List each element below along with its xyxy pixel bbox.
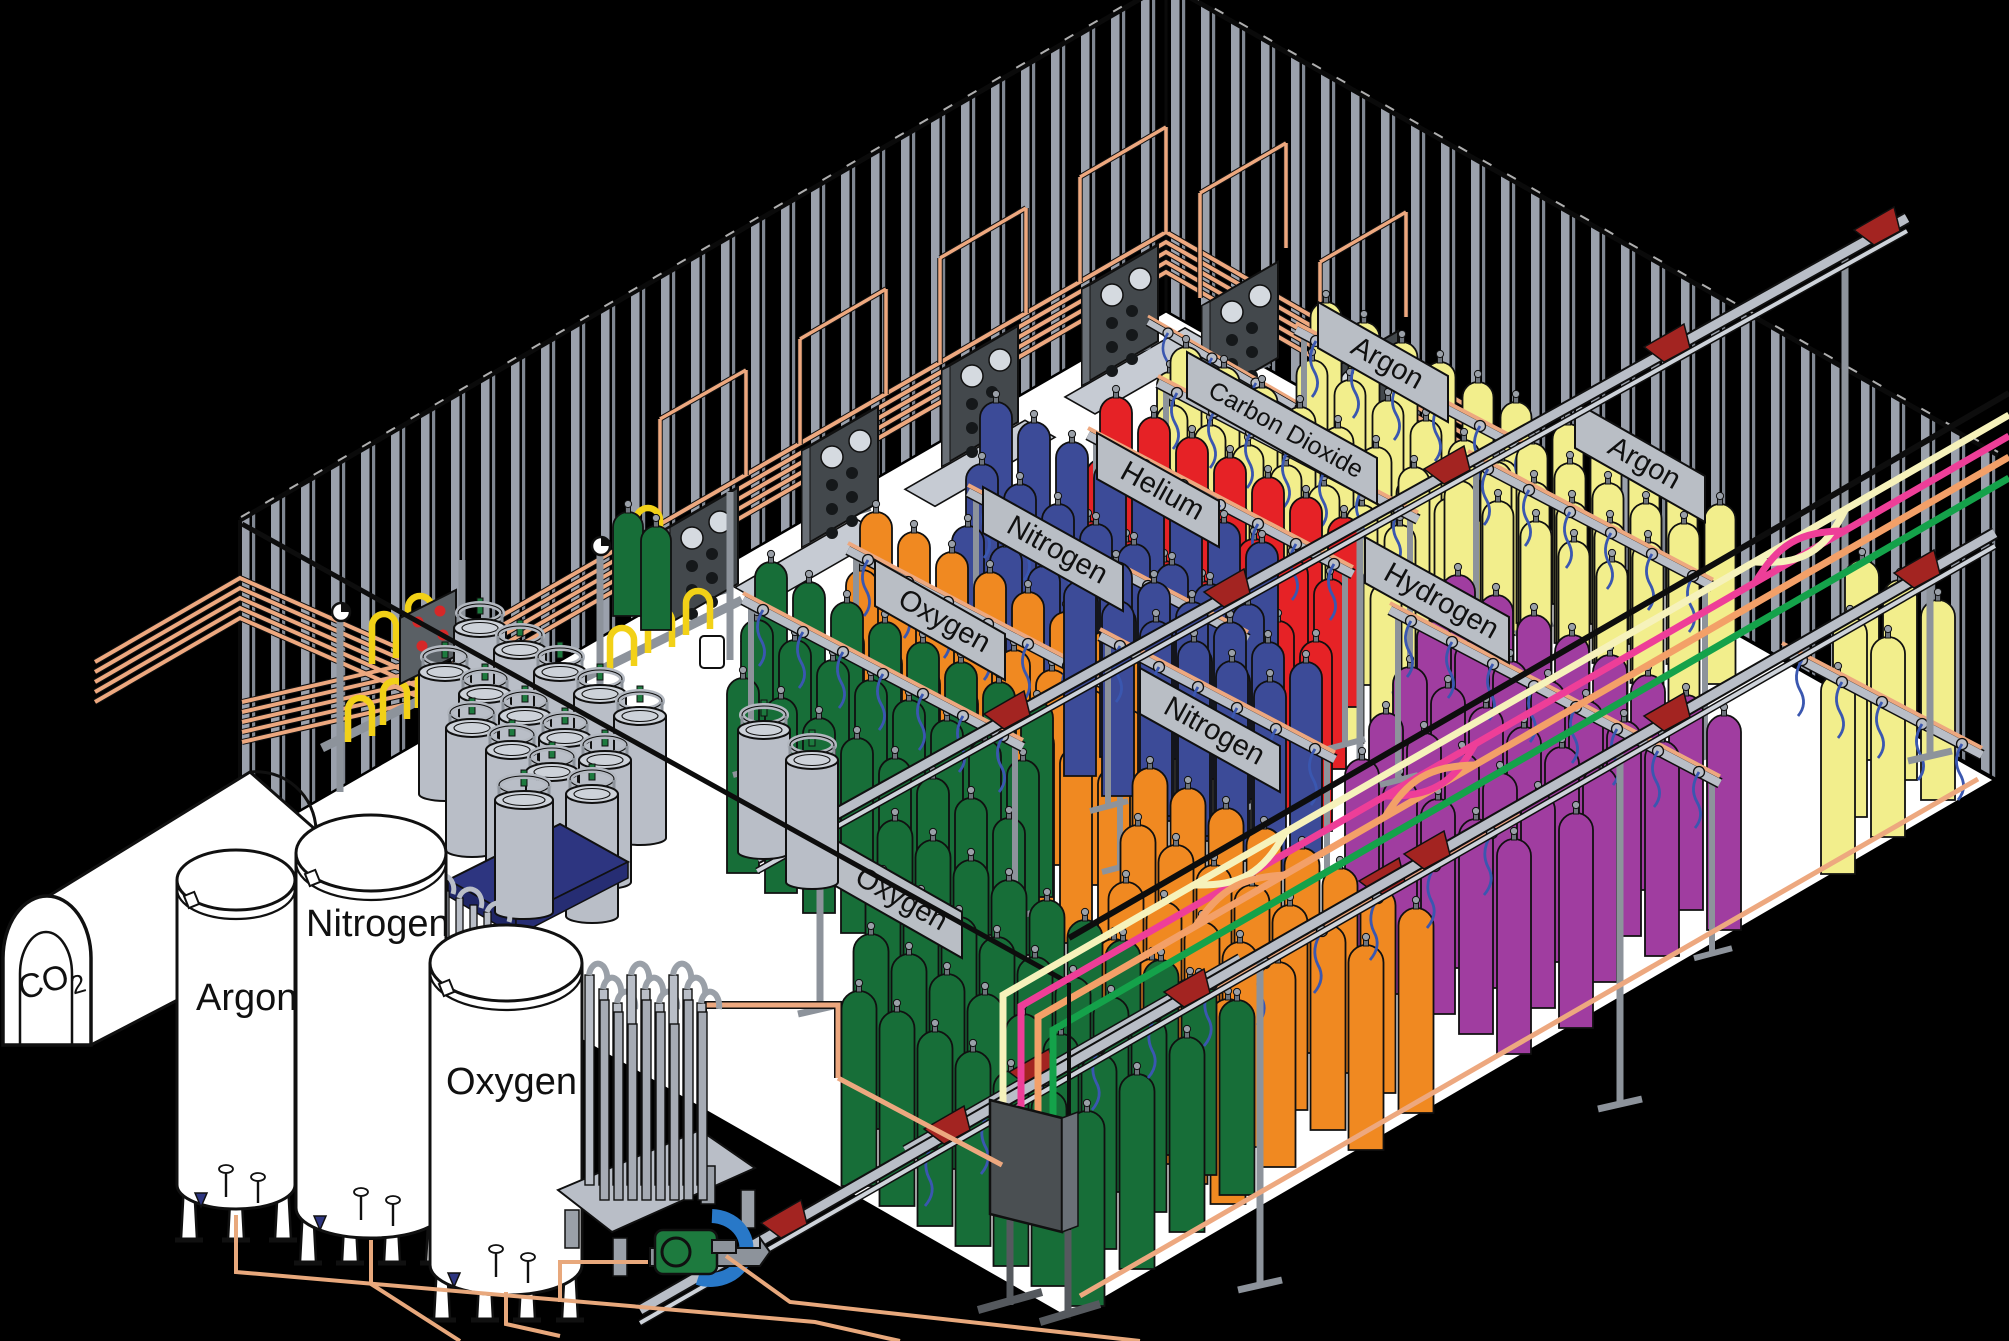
svg-text:Nitrogen: Nitrogen: [306, 903, 450, 945]
svg-text:Oxygen: Oxygen: [446, 1061, 577, 1103]
svg-text:Argon: Argon: [196, 977, 297, 1019]
